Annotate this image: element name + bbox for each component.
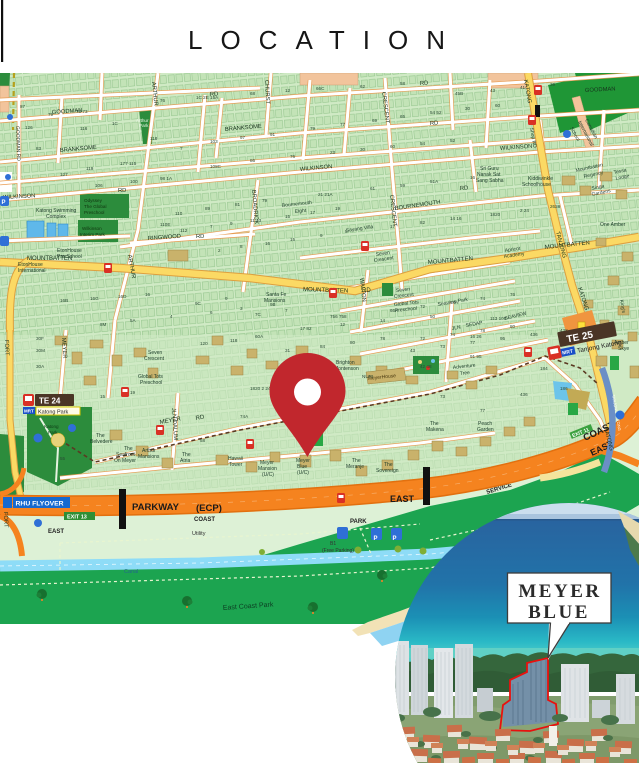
svg-text:16: 16 — [470, 175, 476, 180]
svg-text:177 115: 177 115 — [120, 161, 137, 166]
svg-text:66A: 66A — [390, 308, 399, 313]
svg-text:42 48: 42 48 — [420, 364, 432, 369]
svg-text:78: 78 — [380, 336, 386, 341]
svg-text:69: 69 — [372, 118, 378, 123]
svg-text:19: 19 — [335, 206, 341, 211]
svg-text:Katong Park: Katong Park — [38, 410, 69, 416]
svg-text:78: 78 — [480, 328, 486, 333]
svg-text:Wilkinson: Wilkinson — [82, 226, 102, 231]
svg-text:436: 436 — [520, 392, 528, 397]
svg-text:Katong: Katong — [44, 424, 59, 429]
svg-text:75 73: 75 73 — [76, 109, 88, 114]
svg-text:30: 30 — [360, 147, 366, 152]
svg-text:58: 58 — [400, 81, 406, 86]
svg-text:International: International — [18, 268, 46, 274]
svg-text:54 52: 54 52 — [430, 110, 442, 115]
svg-text:(U/C): (U/C) — [297, 470, 309, 476]
svg-text:80: 80 — [510, 324, 516, 329]
svg-text:79: 79 — [310, 126, 316, 131]
svg-text:54: 54 — [420, 141, 426, 146]
svg-text:Belvedere: Belvedere — [90, 439, 113, 445]
svg-text:7: 7 — [210, 224, 213, 229]
svg-text:The Global: The Global — [84, 204, 106, 209]
svg-text:17 82: 17 82 — [300, 326, 312, 331]
svg-text:30M: 30M — [36, 348, 45, 353]
svg-text:Odyssey: Odyssey — [84, 198, 103, 203]
svg-text:EXIT 13: EXIT 13 — [67, 515, 87, 521]
svg-text:Pre-School: Pre-School — [57, 254, 82, 260]
svg-text:112: 112 — [180, 228, 188, 233]
svg-text:76: 76 — [290, 154, 296, 159]
svg-text:89: 89 — [205, 206, 211, 211]
svg-text:87: 87 — [20, 104, 26, 109]
svg-text:14 16: 14 16 — [450, 216, 462, 221]
svg-text:91: 91 — [270, 132, 276, 137]
svg-text:436: 436 — [530, 332, 538, 337]
svg-text:103: 103 — [210, 139, 218, 144]
svg-text:83: 83 — [36, 146, 42, 151]
svg-text:1820: 1820 — [490, 212, 501, 217]
svg-text:116: 116 — [80, 126, 88, 131]
svg-text:58: 58 — [200, 438, 206, 443]
svg-text:MRT: MRT — [24, 409, 34, 414]
svg-text:77: 77 — [470, 340, 476, 345]
svg-text:73: 73 — [440, 344, 446, 349]
svg-text:15: 15 — [100, 394, 106, 399]
svg-text:RD: RD — [118, 188, 126, 194]
svg-text:Eight: Eight — [295, 208, 308, 215]
svg-text:41: 41 — [520, 85, 526, 90]
svg-text:30: 30 — [465, 106, 471, 111]
svg-text:Preschool: Preschool — [84, 210, 104, 215]
svg-text:74: 74 — [480, 296, 486, 301]
svg-text:43: 43 — [410, 348, 416, 353]
svg-text:15: 15 — [285, 214, 291, 219]
svg-text:2628: 2628 — [550, 204, 561, 209]
svg-text:Canal: Canal — [124, 569, 138, 575]
svg-text:16G: 16G — [90, 296, 99, 301]
svg-text:51A: 51A — [430, 179, 439, 184]
svg-text:91 95: 91 95 — [470, 354, 482, 359]
svg-text:Interim Park: Interim Park — [80, 232, 105, 237]
svg-text:97: 97 — [240, 135, 246, 140]
svg-text:100: 100 — [130, 179, 138, 184]
svg-text:82: 82 — [420, 220, 426, 225]
svg-text:One Amber: One Amber — [600, 222, 626, 228]
svg-text:23: 23 — [330, 150, 336, 155]
svg-text:9: 9 — [225, 296, 228, 301]
svg-text:77: 77 — [340, 122, 346, 127]
svg-text:7: 7 — [180, 146, 183, 151]
svg-text:110E: 110E — [160, 222, 170, 227]
svg-text:Garden: Garden — [477, 427, 494, 433]
svg-text:74A: 74A — [240, 414, 249, 419]
svg-text:74: 74 — [450, 332, 456, 337]
svg-text:16: 16 — [145, 292, 151, 297]
svg-text:81: 81 — [235, 202, 241, 207]
svg-text:GOODMAN RD: GOODMAN RD — [14, 126, 21, 162]
svg-text:2: 2 — [218, 248, 221, 253]
svg-text:184: 184 — [540, 366, 548, 371]
svg-text:65: 65 — [400, 114, 406, 119]
svg-text:17: 17 — [390, 224, 396, 229]
svg-text:Meranje: Meranje — [346, 464, 364, 470]
svg-text:Crescent: Crescent — [144, 356, 165, 362]
svg-text:(Free Parking): (Free Parking) — [322, 548, 354, 554]
svg-text:52: 52 — [450, 138, 456, 143]
svg-text:P: P — [2, 200, 6, 206]
svg-text:16 26: 16 26 — [470, 334, 482, 339]
svg-text:50: 50 — [430, 314, 436, 319]
svg-text:(ECP): (ECP) — [196, 503, 222, 514]
svg-text:BLUE: BLUE — [528, 602, 590, 623]
svg-text:84: 84 — [320, 344, 326, 349]
svg-text:72: 72 — [420, 336, 426, 341]
svg-text:1C: 1C — [112, 121, 119, 126]
svg-text:Makena: Makena — [426, 427, 444, 433]
svg-text:Skye: Skye — [618, 346, 629, 352]
svg-text:On Meyer: On Meyer — [114, 458, 136, 464]
svg-text:5: 5 — [345, 229, 348, 234]
svg-text:79: 79 — [262, 198, 268, 203]
svg-text:76: 76 — [160, 98, 166, 103]
svg-text:39: 39 — [550, 82, 556, 87]
svg-text:86: 86 — [250, 158, 256, 163]
svg-text:Sovereign: Sovereign — [376, 468, 399, 474]
svg-text:RD: RD — [460, 185, 469, 192]
svg-text:72: 72 — [420, 304, 426, 309]
svg-text:118: 118 — [150, 136, 158, 141]
svg-text:15: 15 — [290, 237, 296, 242]
svg-text:4: 4 — [170, 314, 173, 319]
svg-text:RD: RD — [430, 121, 439, 127]
svg-text:3: 3 — [240, 306, 243, 311]
svg-text:73: 73 — [440, 394, 446, 399]
svg-text:110: 110 — [175, 211, 183, 216]
svg-text:126: 126 — [25, 125, 33, 130]
svg-text:Tree: Tree — [460, 370, 471, 377]
svg-text:8: 8 — [240, 244, 243, 249]
svg-text:59: 59 — [400, 183, 406, 188]
svg-text:127: 127 — [60, 172, 68, 177]
svg-text:60: 60 — [390, 144, 396, 149]
svg-text:16D: 16D — [118, 294, 127, 299]
svg-text:66C: 66C — [316, 86, 325, 91]
svg-text:14: 14 — [380, 318, 386, 323]
svg-text:P: P — [374, 536, 378, 542]
svg-text:30F: 30F — [36, 336, 44, 341]
svg-text:80: 80 — [350, 340, 356, 345]
svg-text:11 13: 11 13 — [250, 218, 262, 223]
svg-text:FORT: FORT — [3, 340, 10, 356]
svg-text:7C: 7C — [255, 312, 262, 317]
svg-text:RD: RD — [196, 234, 204, 240]
svg-text:PARK: PARK — [350, 519, 367, 525]
svg-text:16: 16 — [265, 241, 271, 246]
svg-text:45B: 45B — [455, 91, 463, 96]
svg-text:RHU FLYOVER: RHU FLYOVER — [16, 501, 64, 508]
svg-text:1C 2E 15A: 1C 2E 15A — [196, 95, 219, 100]
svg-text:Tower: Tower — [229, 462, 243, 468]
svg-text:RD: RD — [420, 81, 429, 87]
svg-text:62: 62 — [360, 84, 366, 89]
svg-text:119: 119 — [86, 166, 94, 171]
svg-text:21 21A: 21 21A — [318, 192, 333, 197]
svg-text:60: 60 — [495, 103, 501, 108]
svg-text:Complex: Complex — [46, 214, 66, 220]
svg-text:PARKWAY: PARKWAY — [132, 502, 180, 513]
svg-text:6: 6 — [210, 310, 213, 315]
svg-text:12: 12 — [340, 322, 346, 327]
svg-text:2 24: 2 24 — [520, 208, 529, 213]
svg-text:9B: 9B — [270, 302, 276, 307]
svg-text:9: 9 — [230, 221, 233, 226]
svg-text:77: 77 — [480, 408, 486, 413]
svg-text:186: 186 — [560, 386, 568, 391]
svg-text:Sang Sabha: Sang Sabha — [476, 178, 504, 184]
svg-text:19: 19 — [130, 390, 136, 395]
svg-text:Park: Park — [48, 430, 58, 435]
svg-text:16B: 16B — [60, 298, 68, 303]
svg-text:(U/C): (U/C) — [262, 472, 274, 478]
svg-text:76: 76 — [510, 292, 516, 297]
svg-text:55: 55 — [60, 456, 66, 461]
svg-text:9C: 9C — [195, 301, 202, 306]
svg-text:TE 24: TE 24 — [39, 397, 61, 406]
svg-text:106: 106 — [95, 183, 103, 188]
svg-text:RD: RD — [362, 288, 371, 294]
svg-text:Park: Park — [139, 123, 149, 128]
svg-text:12: 12 — [285, 88, 291, 93]
svg-text:Preschool: Preschool — [140, 380, 162, 386]
svg-text:95: 95 — [500, 336, 506, 341]
svg-text:Schoolhouse: Schoolhouse — [522, 182, 551, 188]
svg-text:108C: 108C — [210, 164, 222, 169]
svg-text:Utility: Utility — [192, 531, 206, 537]
svg-text:61: 61 — [370, 186, 376, 191]
svg-text:30A: 30A — [36, 364, 45, 369]
svg-text:B1: B1 — [330, 541, 336, 547]
svg-text:74A: 74A — [450, 300, 459, 305]
svg-text:COAST: COAST — [194, 517, 215, 523]
svg-text:43: 43 — [490, 88, 496, 93]
svg-text:NURI: NURI — [362, 374, 373, 379]
svg-text:FORT: FORT — [2, 512, 9, 528]
svg-text:EAST: EAST — [48, 529, 64, 535]
svg-text:98 1A: 98 1A — [160, 176, 173, 181]
svg-text:756 758: 756 758 — [330, 314, 347, 319]
svg-text:5A: 5A — [130, 318, 137, 323]
svg-text:60A: 60A — [255, 334, 264, 339]
svg-text:P: P — [393, 536, 397, 542]
svg-text:Mansions: Mansions — [138, 454, 160, 460]
svg-text:Atria: Atria — [180, 458, 191, 464]
svg-text:7: 7 — [285, 308, 288, 313]
svg-text:113 105: 113 105 — [490, 316, 507, 321]
svg-text:17: 17 — [310, 210, 316, 215]
svg-text:31: 31 — [285, 348, 291, 353]
svg-text:118: 118 — [230, 338, 238, 343]
svg-text:EAST: EAST — [390, 494, 415, 504]
svg-text:MEYER: MEYER — [518, 581, 601, 602]
svg-text:120: 120 — [200, 341, 208, 346]
svg-text:79: 79 — [48, 112, 54, 117]
svg-text:8M: 8M — [100, 322, 107, 327]
svg-text:68: 68 — [250, 91, 256, 96]
svg-text:9: 9 — [320, 233, 323, 238]
